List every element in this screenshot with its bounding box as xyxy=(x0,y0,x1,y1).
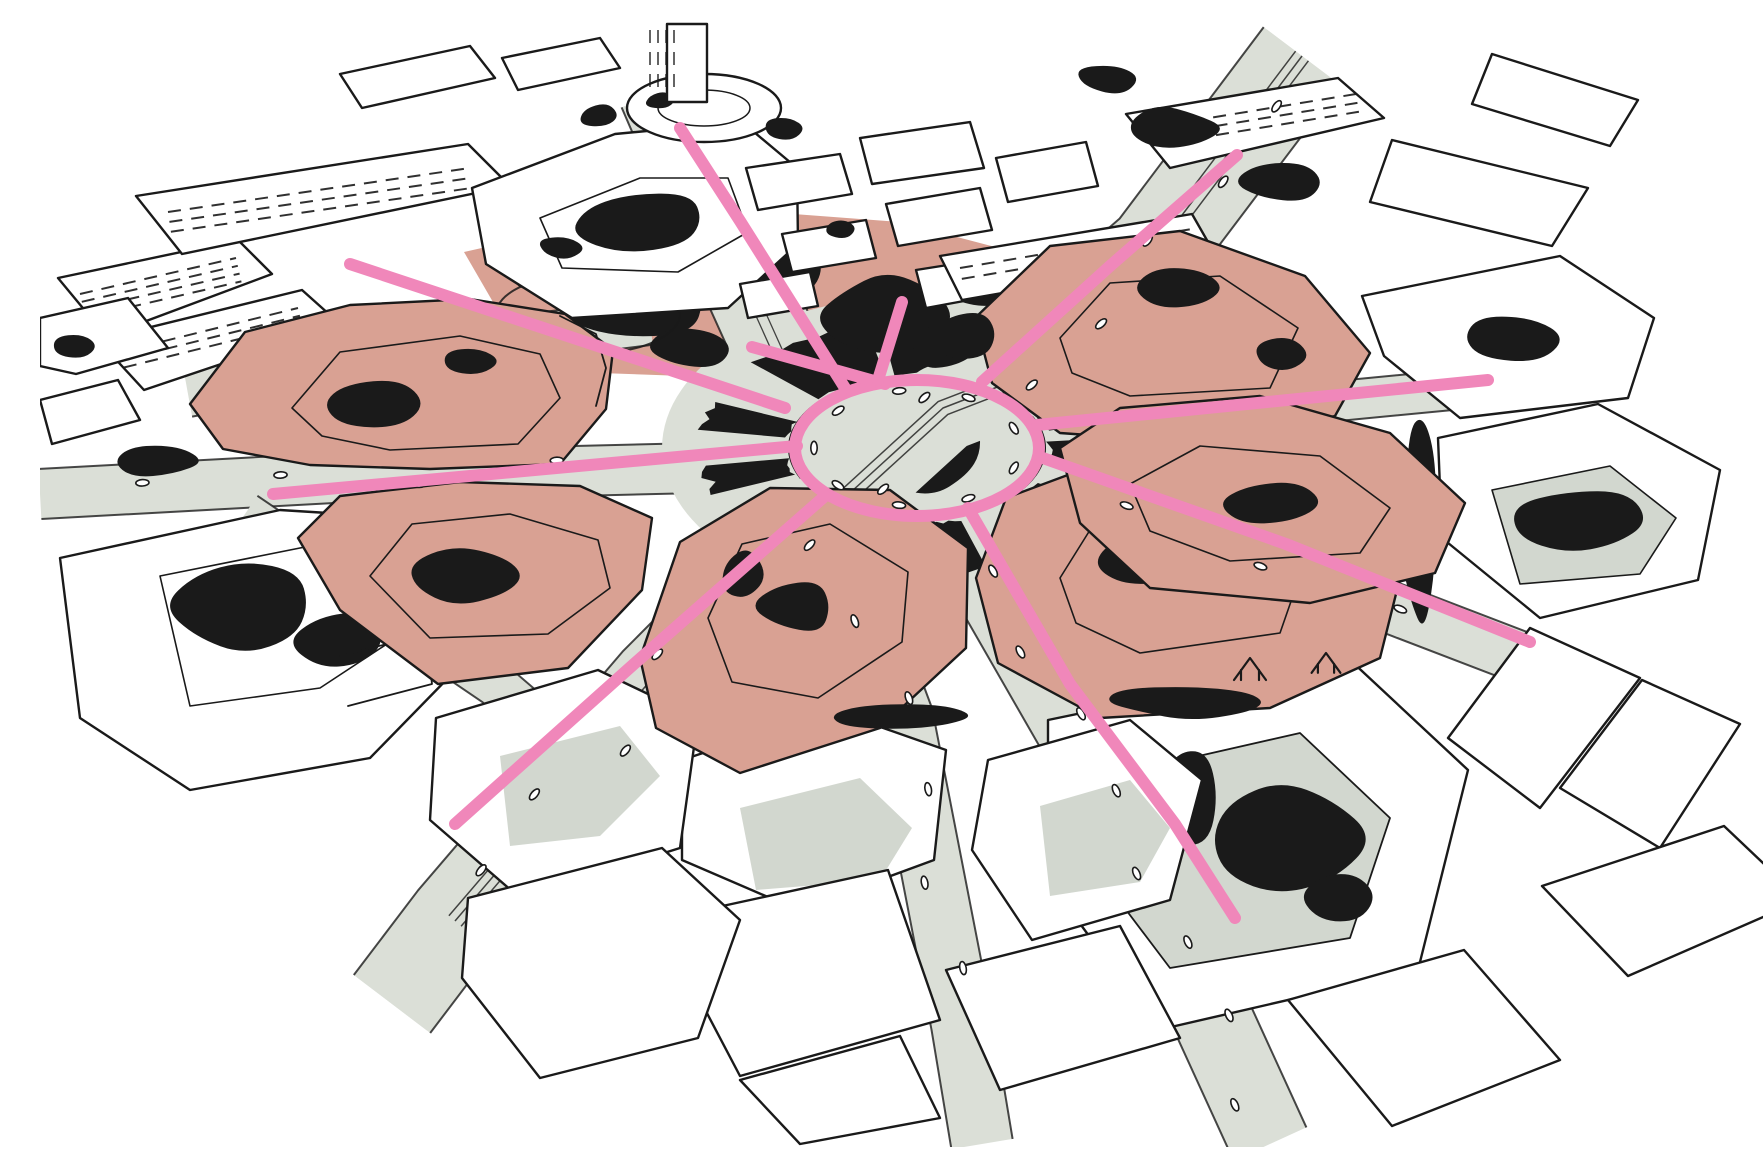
parked-cars xyxy=(274,471,288,478)
ring-road-cars xyxy=(811,441,817,454)
illustration-figure: Hand-drawn isometric aerial illustration… xyxy=(40,16,1763,1147)
tower-block xyxy=(667,24,707,102)
ring-road-cars xyxy=(892,501,906,509)
map-illustration-svg xyxy=(40,16,1763,1147)
ring-road-cars xyxy=(892,387,906,395)
illustration-canvas xyxy=(40,16,1763,1147)
parked-cars xyxy=(136,479,150,486)
